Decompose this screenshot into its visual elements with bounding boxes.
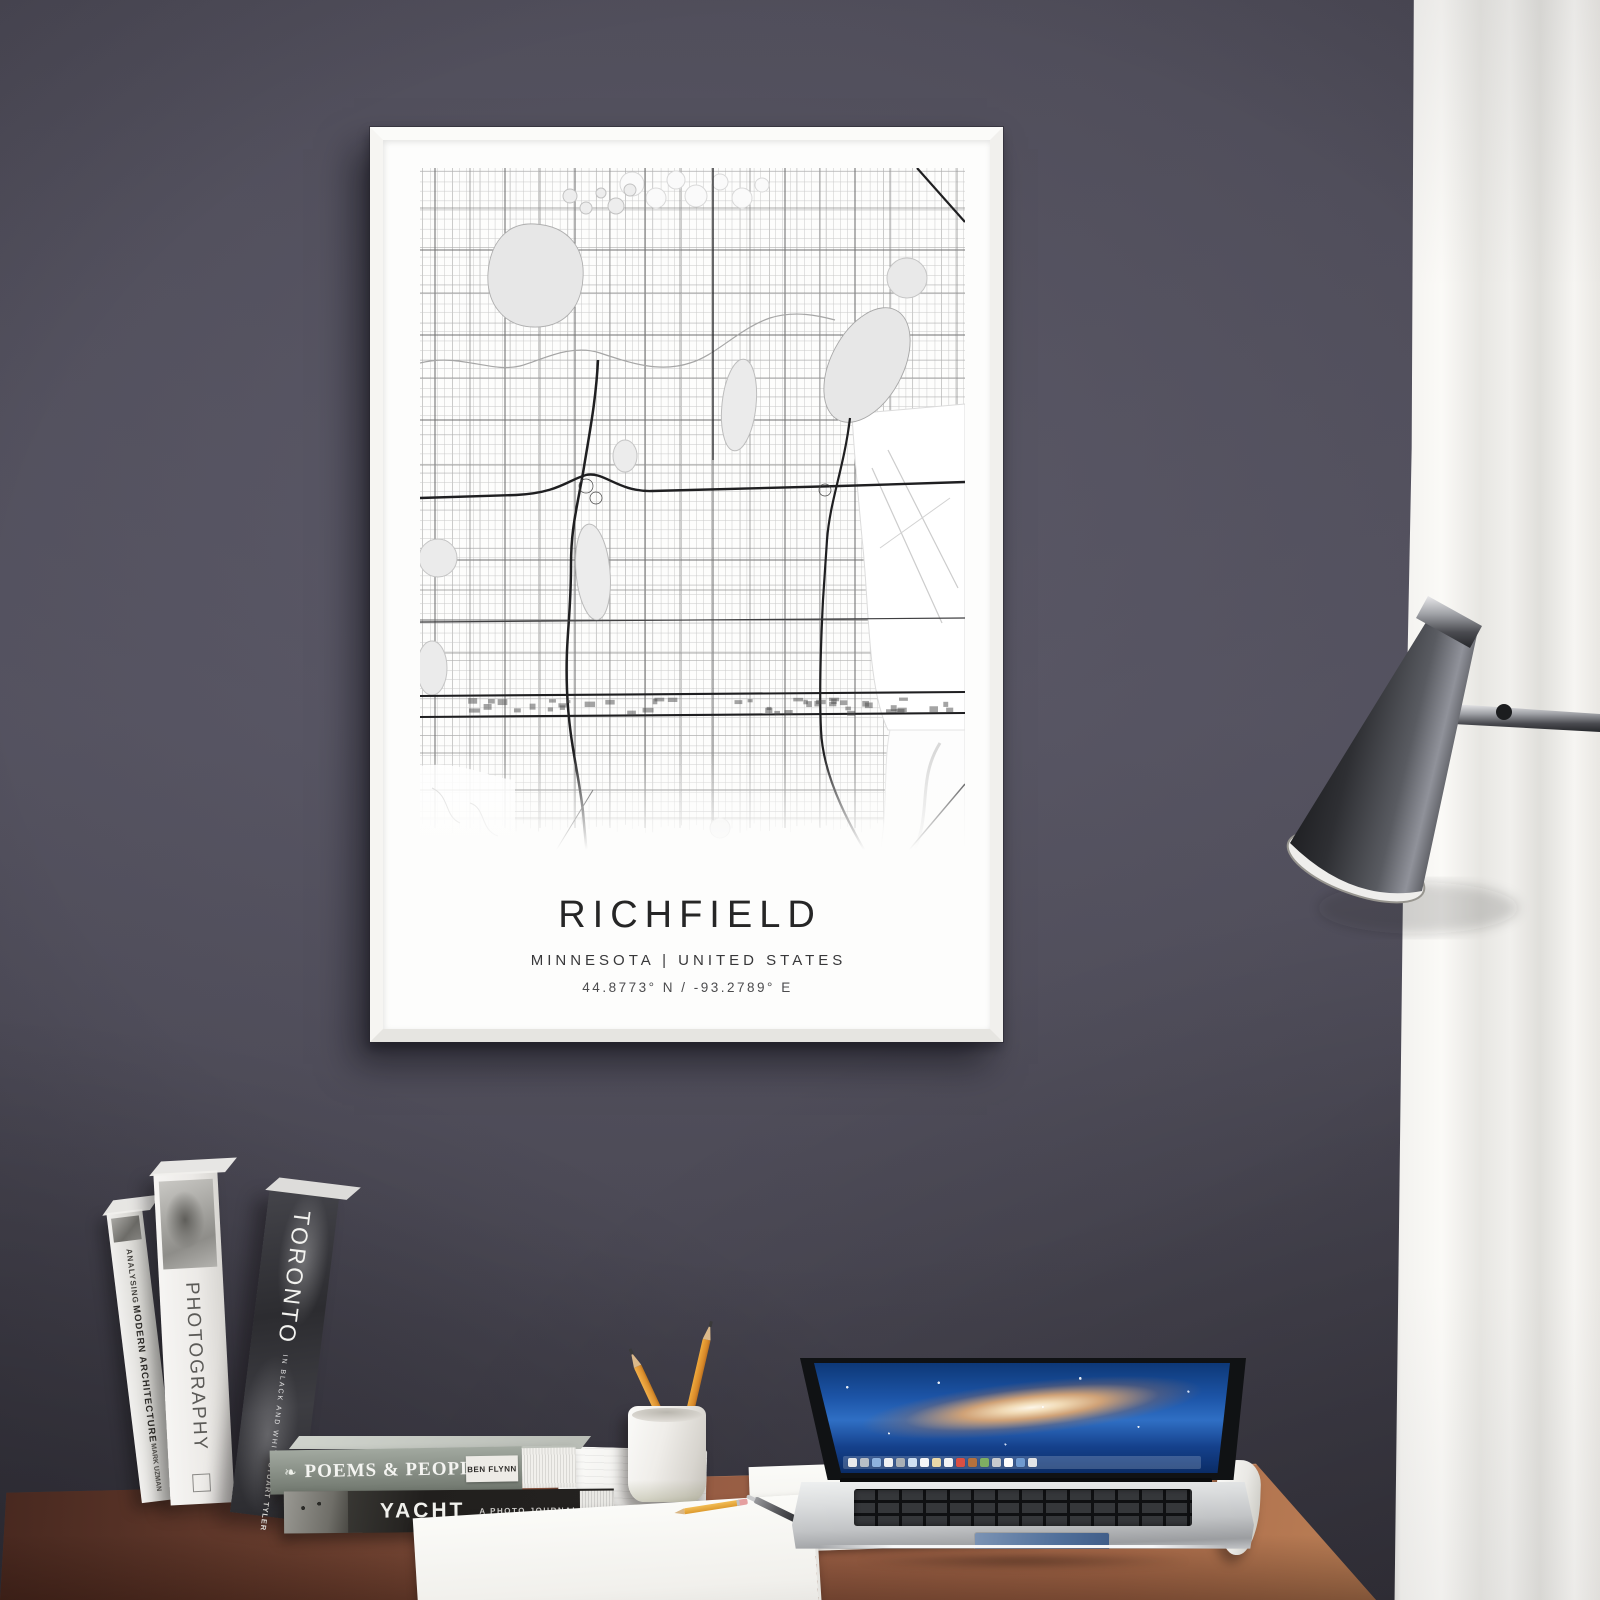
dock-app-icon	[968, 1458, 977, 1467]
dock-app-icon	[908, 1458, 917, 1467]
dock-app-icon	[956, 1458, 965, 1467]
dock-app-icon	[872, 1458, 881, 1467]
poster-coordinates: 44.8773° N / -93.2789° E	[383, 980, 990, 996]
poster-paper: RICHFIELD MINNESOTA | UNITED STATES 44.8…	[383, 140, 990, 1029]
poster-frame: RICHFIELD MINNESOTA | UNITED STATES 44.8…	[370, 127, 1003, 1042]
dock-app-icon	[884, 1458, 893, 1467]
airport-area	[852, 404, 965, 730]
laptop-screen	[814, 1363, 1230, 1473]
dock-app-icon	[944, 1458, 953, 1467]
dock-app-icon	[896, 1458, 905, 1467]
book-title: ANALYSING	[124, 1248, 140, 1304]
laptop-trackpad	[974, 1532, 1110, 1554]
book-cover-photo	[284, 1491, 348, 1534]
laptop	[792, 1352, 1254, 1582]
room-scene: RICHFIELD MINNESOTA | UNITED STATES 44.8…	[0, 0, 1600, 1600]
lamp-joint	[1496, 704, 1512, 720]
poster-subtitle: MINNESOTA | UNITED STATES	[383, 952, 990, 970]
lamp-shade-cone	[1290, 606, 1478, 893]
book-author: MARK UZMAN	[149, 1443, 162, 1492]
laptop-base	[792, 1482, 1254, 1556]
desk-lamp	[1268, 572, 1600, 954]
book-cover-photo	[159, 1179, 217, 1270]
publisher-logo	[192, 1473, 211, 1492]
lamp-arm	[1453, 704, 1600, 732]
book-cover-photo	[111, 1215, 142, 1242]
book-title: TORONTO	[272, 1209, 315, 1346]
dock-app-icon	[920, 1458, 929, 1467]
dock-app-icon	[1028, 1458, 1037, 1467]
dock-app-icon	[980, 1458, 989, 1467]
book-title: MODERN ARCHITECTURE	[130, 1305, 158, 1444]
dock-app-icon	[848, 1458, 857, 1467]
laptop-shadow	[798, 1552, 1248, 1570]
dock-app-icon	[932, 1458, 941, 1467]
dock	[843, 1456, 1201, 1469]
laptop-keyboard	[854, 1489, 1192, 1526]
dock-app-icon	[1004, 1458, 1013, 1467]
dock-app-icon	[860, 1458, 869, 1467]
poster-title: RICHFIELD	[383, 892, 990, 938]
laptop-lid	[800, 1358, 1246, 1480]
dock-app-icon	[992, 1458, 1001, 1467]
leaf-icon: ❧	[284, 1463, 297, 1481]
dock-app-icon	[1016, 1458, 1025, 1467]
book-title: PHOTOGRAPHY	[180, 1282, 211, 1452]
lakes	[420, 184, 928, 838]
paper-sheet	[413, 1494, 820, 1600]
city-street-map	[420, 168, 965, 875]
